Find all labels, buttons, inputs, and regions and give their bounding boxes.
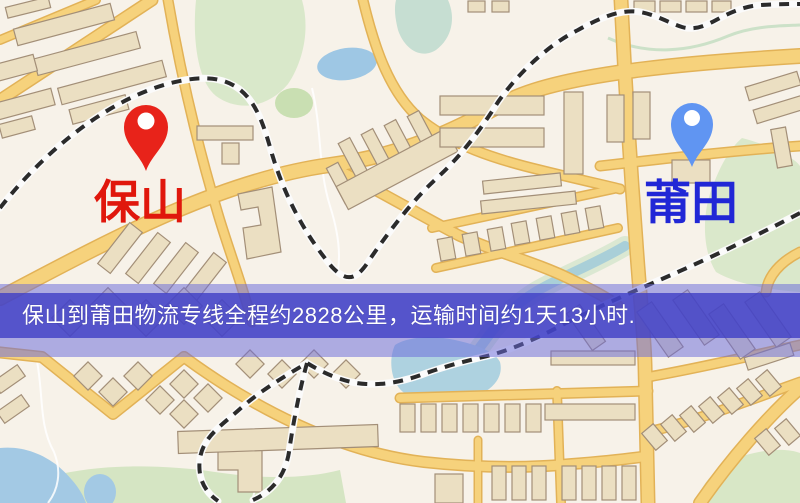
route-banner-text: 保山到莆田物流专线全程约2828公里，运输时间约1天13小时. <box>0 293 635 338</box>
logistics-route-map: 保山 莆田 保山到莆田物流专线全程约2828公里，运输时间约1天13小时. <box>0 0 800 503</box>
destination-pin-hole <box>684 110 700 126</box>
destination-label: 莆田 <box>644 176 738 229</box>
origin-pin-hole <box>138 113 155 130</box>
origin-label: 保山 <box>94 176 186 228</box>
route-banner: 保山到莆田物流专线全程约2828公里，运输时间约1天13小时. <box>0 293 800 338</box>
map-image: 保山 莆田 <box>0 0 800 503</box>
